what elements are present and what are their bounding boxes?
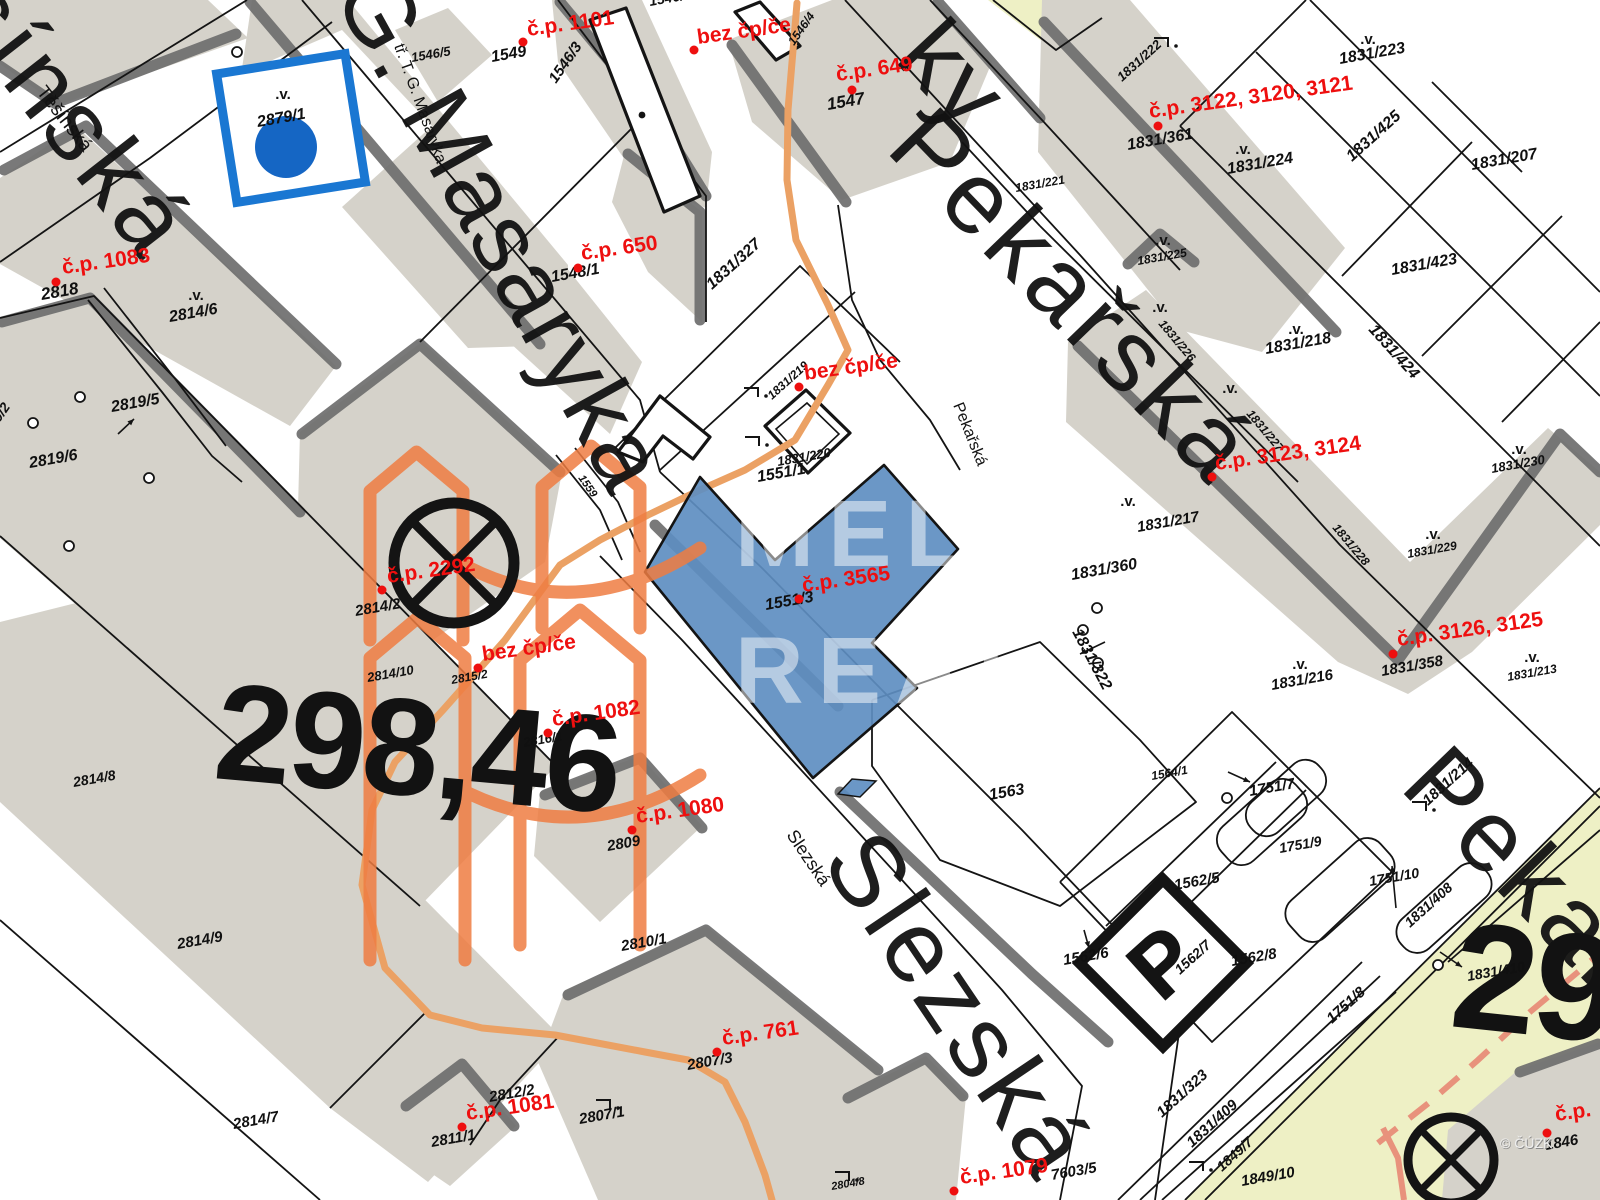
cadastral-map-viewport: MELKREALP.v..v..v..v..v..v..v..v..v..v..…: [0, 0, 1600, 1200]
survey-v-symbol: .v.: [275, 86, 291, 103]
copyright-watermark: © ČÚZK: [1500, 1135, 1553, 1151]
address-dot: [1154, 122, 1163, 131]
address-dot: [1208, 473, 1217, 482]
survey-node: [144, 473, 154, 483]
address-dot: [795, 595, 804, 604]
address-dot: [52, 278, 61, 287]
survey-v-symbol: .v.: [1524, 649, 1540, 666]
survey-node: [1433, 960, 1443, 970]
survey-v-symbol: .v.: [1120, 493, 1136, 510]
address-dot: [474, 664, 483, 673]
cadastral-map: MELKREALP.v..v..v..v..v..v..v..v..v..v..…: [0, 0, 1600, 1200]
address-dot: [690, 46, 699, 55]
survey-v-symbol: .v.: [1155, 232, 1171, 249]
survey-v-symbol: .v.: [188, 287, 204, 304]
survey-node: [1092, 603, 1102, 613]
survey-v-symbol: .v.: [1425, 526, 1441, 543]
address-dot: [519, 38, 528, 47]
survey-v-symbol: .v.: [1235, 141, 1251, 158]
address-dot: [628, 826, 637, 835]
survey-node: [64, 541, 74, 551]
address-dot: [1389, 650, 1398, 659]
elevation-number: 298: [1445, 890, 1600, 1085]
survey-node: [75, 392, 85, 402]
address-dot: [795, 383, 804, 392]
survey-node: [28, 418, 38, 428]
address-dot: [713, 1048, 722, 1057]
address-dot: [544, 729, 553, 738]
address-dot: [458, 1123, 467, 1132]
survey-node: [1222, 793, 1232, 803]
address-dot: [848, 86, 857, 95]
survey-node: [232, 47, 242, 57]
watermark-text: MELK: [735, 481, 1060, 587]
address-dot: [574, 264, 583, 273]
survey-dot: [639, 112, 646, 119]
address-dot: [378, 586, 387, 595]
address-dot: [950, 1187, 959, 1196]
watermark-text: REAL: [735, 618, 1050, 724]
